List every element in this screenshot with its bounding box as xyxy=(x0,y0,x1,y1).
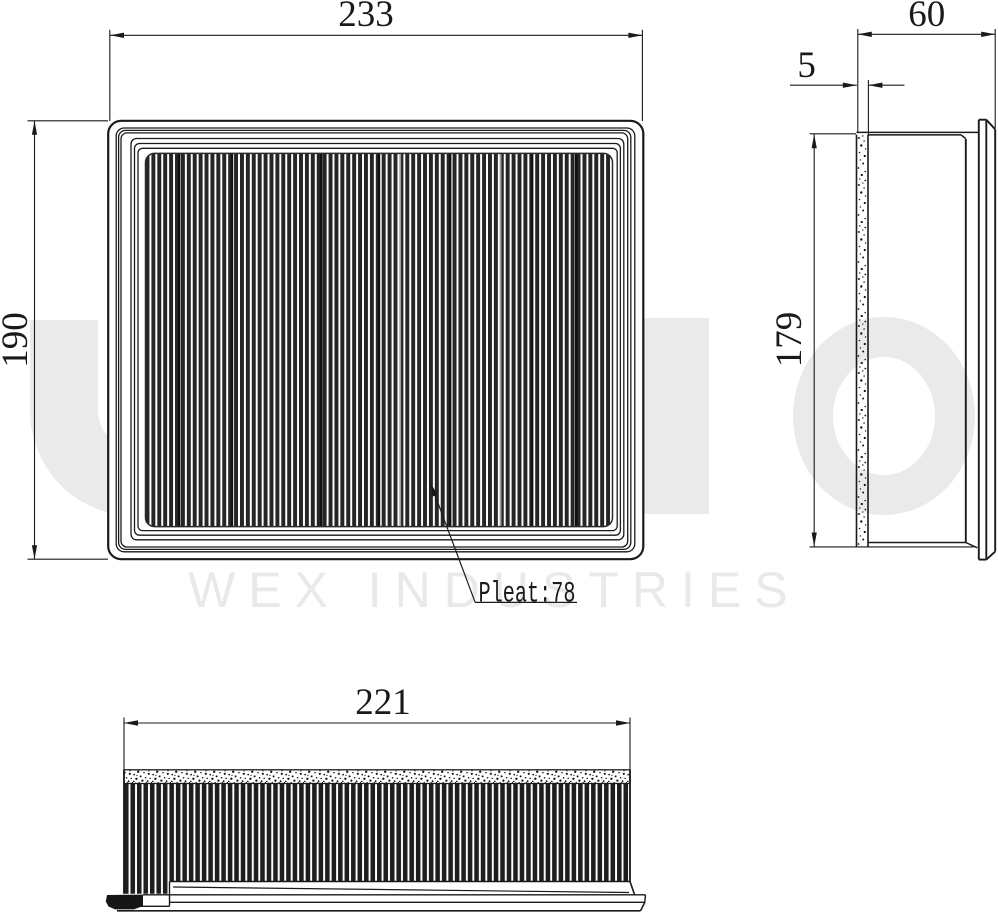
svg-text:5: 5 xyxy=(797,45,816,86)
svg-text:60: 60 xyxy=(908,0,945,35)
svg-text:179: 179 xyxy=(769,312,810,368)
svg-text:190: 190 xyxy=(0,312,36,368)
svg-text:233: 233 xyxy=(338,0,394,35)
svg-text:221: 221 xyxy=(355,682,411,723)
svg-text:Pleat:78: Pleat:78 xyxy=(479,577,576,611)
